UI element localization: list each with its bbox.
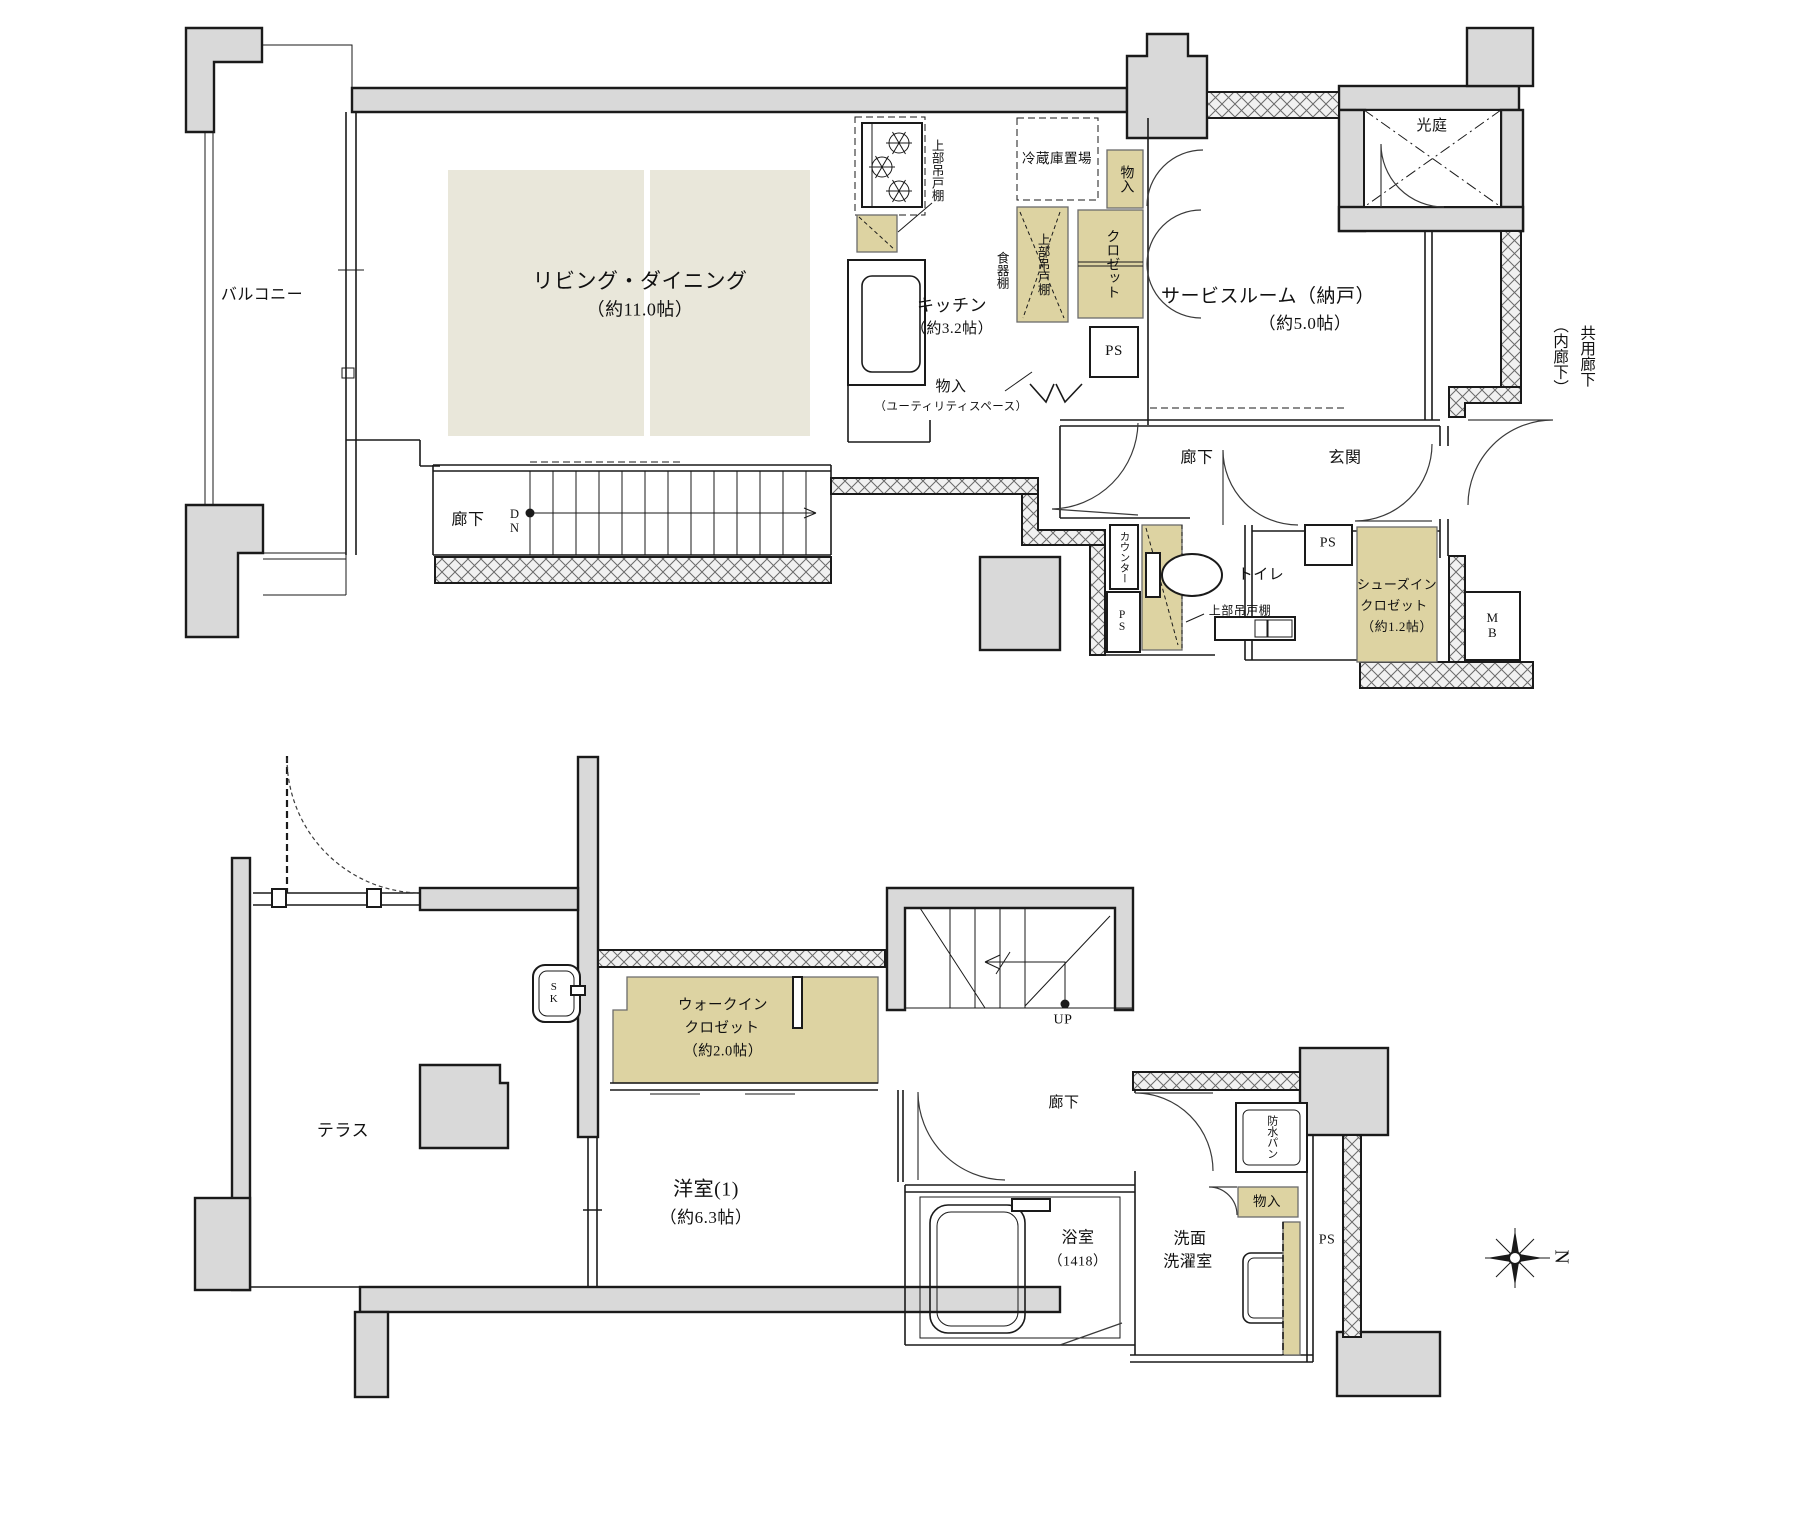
floor-plan-drawing xyxy=(0,0,1800,1524)
storage-utility-note: （ユーティリティスペース） xyxy=(874,401,1027,413)
compass-icon xyxy=(1485,1228,1550,1288)
counter-label: カウンター xyxy=(1118,531,1129,584)
fridge-space-label: 冷蔵庫置場 xyxy=(1022,152,1092,166)
walk-in-closet-l1: ウォークイン xyxy=(678,998,768,1013)
compass-north-label: N xyxy=(1551,1250,1572,1265)
hanging-cabinet-kitchen-label: 上部吊戸棚 xyxy=(1035,233,1048,296)
waterproof-pan-label: 防水パン xyxy=(1265,1115,1277,1159)
living-dining-label: リビング・ダイニング xyxy=(533,270,748,292)
lower-floor xyxy=(195,756,1440,1397)
storage-top-label: 物入 xyxy=(1118,165,1133,193)
bath-size: （1418） xyxy=(1049,1256,1108,1271)
closet-label: クロゼット xyxy=(1104,229,1119,299)
ps-lower-label: PS xyxy=(1319,1234,1336,1249)
shoes-in-closet-l3: （約1.2帖） xyxy=(1361,620,1433,634)
shared-corridor-note: （内廊下） xyxy=(1551,317,1567,395)
bedroom-outline xyxy=(583,1090,905,1287)
ps-toilet-label: PS xyxy=(1116,609,1128,633)
corridor-left-label: 廊下 xyxy=(451,513,484,530)
toilet-area xyxy=(1105,518,1295,660)
light-court-label: 光庭 xyxy=(1416,119,1447,135)
entrance-label: 玄関 xyxy=(1328,451,1361,468)
floor-plan-maisonette: バルコニー リビング・ダイニング （約11.0帖） 上部吊戸棚 冷蔵庫置場 物入… xyxy=(0,0,1800,1524)
corridor-upper-label: 廊下 xyxy=(1180,451,1213,468)
bath-label: 浴室 xyxy=(1061,1231,1094,1248)
terrace-label: テラス xyxy=(317,1122,369,1140)
hanging-cabinet-stove-label: 上部吊戸棚 xyxy=(929,139,942,202)
sk-label: SK xyxy=(547,981,559,1005)
storage-utility-label: 物入 xyxy=(935,380,966,396)
storage-lower-label: 物入 xyxy=(1253,1195,1281,1209)
upper-stairs xyxy=(346,440,831,555)
service-room-size: （約5.0帖） xyxy=(1259,315,1352,333)
shoes-in-closet-l2: クロゼット xyxy=(1360,599,1428,613)
walk-in-closet-l2: クロゼット xyxy=(685,1021,760,1036)
balcony-label: バルコニー xyxy=(221,288,303,305)
kitchen-size: （約3.2帖） xyxy=(911,322,993,338)
mb-label: MB xyxy=(1485,610,1499,640)
stairs-dn-label: DN xyxy=(507,507,520,535)
hanging-cabinet-toilet-label: 上部吊戸棚 xyxy=(1209,605,1272,618)
washroom-l1: 洗面 xyxy=(1173,1232,1206,1249)
toilet-label: トイレ xyxy=(1238,568,1285,584)
bedroom-size: （約6.3帖） xyxy=(660,1209,753,1227)
bedroom-label: 洋室(1) xyxy=(673,1180,739,1201)
living-dining-size: （約11.0帖） xyxy=(587,301,694,320)
service-room-label: サービスルーム（納戸） xyxy=(1161,287,1375,307)
ps-entrance-label: PS xyxy=(1320,537,1337,552)
upper-floor xyxy=(186,28,1553,688)
washroom-l2: 洗濯室 xyxy=(1163,1255,1213,1272)
corridor-lower-label: 廊下 xyxy=(1048,1096,1079,1112)
ps-kitchen-label: PS xyxy=(1105,344,1123,360)
stairs-up-label: UP xyxy=(1054,1014,1073,1029)
lower-stairs xyxy=(905,908,1133,1009)
kitchen-label: キッチン xyxy=(917,297,987,315)
bath-washroom-outline xyxy=(905,1090,1313,1362)
dish-shelf-label: 食器棚 xyxy=(994,251,1007,289)
shared-corridor-label: 共用廊下 xyxy=(1578,325,1594,387)
shoes-in-closet-l1: シューズイン xyxy=(1357,578,1437,592)
walk-in-closet-l3: （約2.0帖） xyxy=(683,1044,763,1059)
